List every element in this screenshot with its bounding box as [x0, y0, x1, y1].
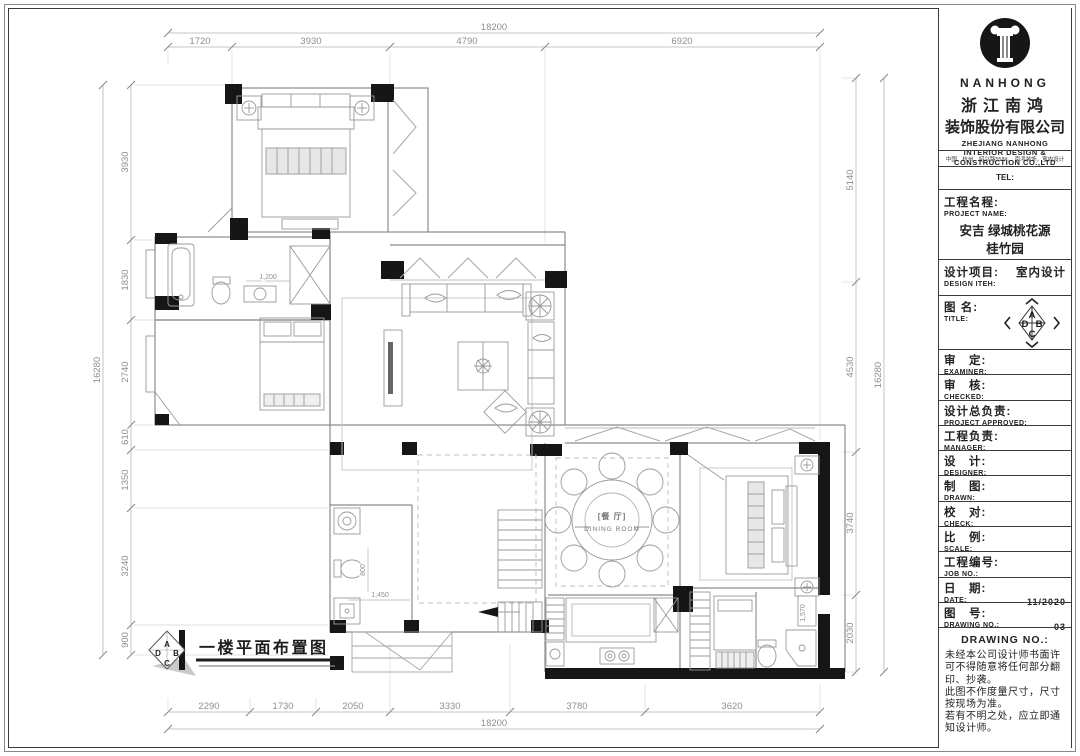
bedroom-right [688, 455, 819, 596]
svg-text:900: 900 [120, 632, 131, 648]
svg-text:A: A [164, 640, 170, 649]
svg-text:2290: 2290 [198, 701, 219, 712]
project-value-line1: 安吉 绿城桃花源 [944, 222, 1066, 240]
row-designer: 设 计: DESIGNER: [939, 450, 1071, 475]
svg-text:4530: 4530 [845, 356, 856, 377]
dim-stair-depth: 800 [360, 564, 367, 576]
svg-text:3930: 3930 [300, 36, 321, 47]
company-address: 中国．杭州．绍兴路558#， 南鸿装饰，室内设计 [939, 150, 1071, 166]
svg-text:18200: 18200 [481, 718, 507, 729]
svg-text:16280: 16280 [92, 357, 103, 383]
logo-wordmark: NANHONG [939, 76, 1071, 90]
svg-text:1350: 1350 [120, 469, 131, 490]
dim-bath-vanity: 1,570 [800, 604, 807, 622]
design-item-value: 室内设计 [1016, 264, 1066, 280]
wardrobe-left [290, 246, 330, 304]
row-date: 日 期: DATE:11/2020 [939, 577, 1071, 602]
bedroom-small [155, 318, 324, 425]
row-project-approved: 设计总负责: PROJECT APPROVED: [939, 400, 1071, 425]
dimension-labels-left: 16280 3930 1830 2740 610 1350 3240 900 [92, 151, 131, 648]
company-name-cn-2: 装饰股份有限公司 [939, 116, 1071, 137]
bathroom-stairs [334, 508, 410, 624]
design-item-label-cn: 设计项目: [944, 264, 999, 280]
svg-text:2740: 2740 [120, 361, 131, 382]
note-copyright: 未经本公司设计师书面许可不得随意将任何部分翻印、抄袭。 [945, 650, 1065, 687]
compass-plan: A B C D [149, 630, 196, 676]
walls [146, 88, 845, 672]
svg-text:B: B [173, 649, 179, 658]
svg-text:2030: 2030 [845, 622, 856, 643]
design-item-label-en: DESIGN ITEH: [944, 281, 1066, 288]
svg-text:1830: 1830 [120, 269, 131, 290]
svg-text:4790: 4790 [456, 36, 477, 47]
dimension-chain-top [164, 29, 824, 440]
note-contact: 若有不明之处，应立即通知设计师。 [945, 711, 1065, 735]
bedroom-master [208, 94, 374, 232]
svg-text:C: C [164, 659, 170, 668]
svg-text:D: D [1022, 319, 1029, 330]
svg-text:3330: 3330 [439, 701, 460, 712]
signature-rows: 审 定: EXAMINER: 审 核: CHECKED: 设计总负责: PROJ… [939, 349, 1071, 627]
windows [390, 100, 815, 441]
brand-block: NANHONG 浙江南鸿 装饰股份有限公司 ZHEJIANG NANHONG I… [939, 8, 1071, 150]
svg-text:D: D [155, 649, 161, 658]
dimension-labels-right: 16280 5140 4530 3740 2030 [845, 169, 884, 643]
svg-text:C: C [1029, 329, 1036, 340]
dimension-labels-top: 18200 1720 3930 4790 6920 [189, 22, 692, 47]
stairs [418, 455, 542, 632]
kitchen [546, 598, 678, 666]
drawing-sheet: 18200 1720 3930 4790 6920 [0, 0, 1080, 756]
nanhong-logo-icon [978, 16, 1032, 70]
row-drawing-no: 图 号: DRAWING NO.:03 [939, 602, 1071, 627]
svg-text:1730: 1730 [272, 701, 293, 712]
svg-text:610: 610 [120, 429, 131, 445]
hall-tv-cabinet [384, 330, 402, 406]
svg-text:1720: 1720 [189, 36, 210, 47]
design-item-field: 设计项目: 室内设计 DESIGN ITEH: [939, 259, 1071, 295]
row-job-no: 工程编号: JOB NO.: [939, 551, 1071, 576]
floor-plan: 18200 1720 3930 4790 6920 [8, 8, 938, 748]
drawing-title-field: 图 名: TITLE: A B C D [939, 295, 1071, 349]
title-block: NANHONG 浙江南鸿 装饰股份有限公司 ZHEJIANG NANHONG I… [938, 8, 1071, 748]
floor-plan-label: 一楼平面布置图 [199, 638, 329, 657]
svg-text:2050: 2050 [342, 701, 363, 712]
living-room [342, 284, 554, 470]
row-checked: 审 核: CHECKED: [939, 374, 1071, 399]
dim-vanity: 1,200 [259, 274, 277, 281]
row-manager: 工程负责: MANAGER: [939, 425, 1071, 450]
dining-label-en: DINING ROOM [584, 526, 640, 533]
project-name-field: 工程名程: PROJECT NAME: 安吉 绿城桃花源 桂竹园 [939, 189, 1071, 259]
bathroom-right [690, 592, 816, 670]
svg-text:3620: 3620 [721, 701, 742, 712]
columns [155, 84, 845, 679]
svg-text:3240: 3240 [120, 555, 131, 576]
row-examiner: 审 定: EXAMINER: [939, 349, 1071, 374]
svg-text:3930: 3930 [120, 151, 131, 172]
row-scale: 比 例: SCALE: [939, 526, 1071, 551]
project-label-cn: 工程名程: [944, 194, 1066, 210]
dim-stair-width: 1,450 [371, 592, 389, 599]
company-name-cn-1: 浙江南鸿 [939, 92, 1071, 116]
svg-text:3740: 3740 [845, 512, 856, 533]
notes-block: DRAWING NO.: 未经本公司设计师书面许可不得随意将任何部分翻印、抄袭。… [939, 627, 1071, 748]
compass-title-block: A B C D [1003, 298, 1061, 348]
tel-label: TEL: [939, 166, 1071, 189]
row-drawn: 制 图: DRAWN: [939, 475, 1071, 500]
svg-text:16280: 16280 [873, 362, 884, 388]
project-value-line2: 桂竹园 [944, 240, 1066, 258]
svg-text:A: A [1029, 310, 1036, 321]
svg-text:18200: 18200 [481, 22, 507, 33]
svg-text:3780: 3780 [566, 701, 587, 712]
dining-label-cn: [餐 厅] [598, 511, 627, 521]
svg-text:B: B [1036, 319, 1043, 330]
notes-header: DRAWING NO.: [945, 634, 1065, 646]
dimension-labels-bottom: 18200 2290 1730 2050 3330 3780 3620 [198, 701, 742, 729]
note-measure: 此图不作度量尺寸，尺寸按现场为准。 [945, 687, 1065, 711]
row-check: 校 对: CHECK: [939, 501, 1071, 526]
svg-text:6920: 6920 [671, 36, 692, 47]
entry-porch [352, 632, 452, 672]
svg-text:5140: 5140 [845, 169, 856, 190]
project-label-en: PROJECT NAME: [944, 211, 1066, 218]
